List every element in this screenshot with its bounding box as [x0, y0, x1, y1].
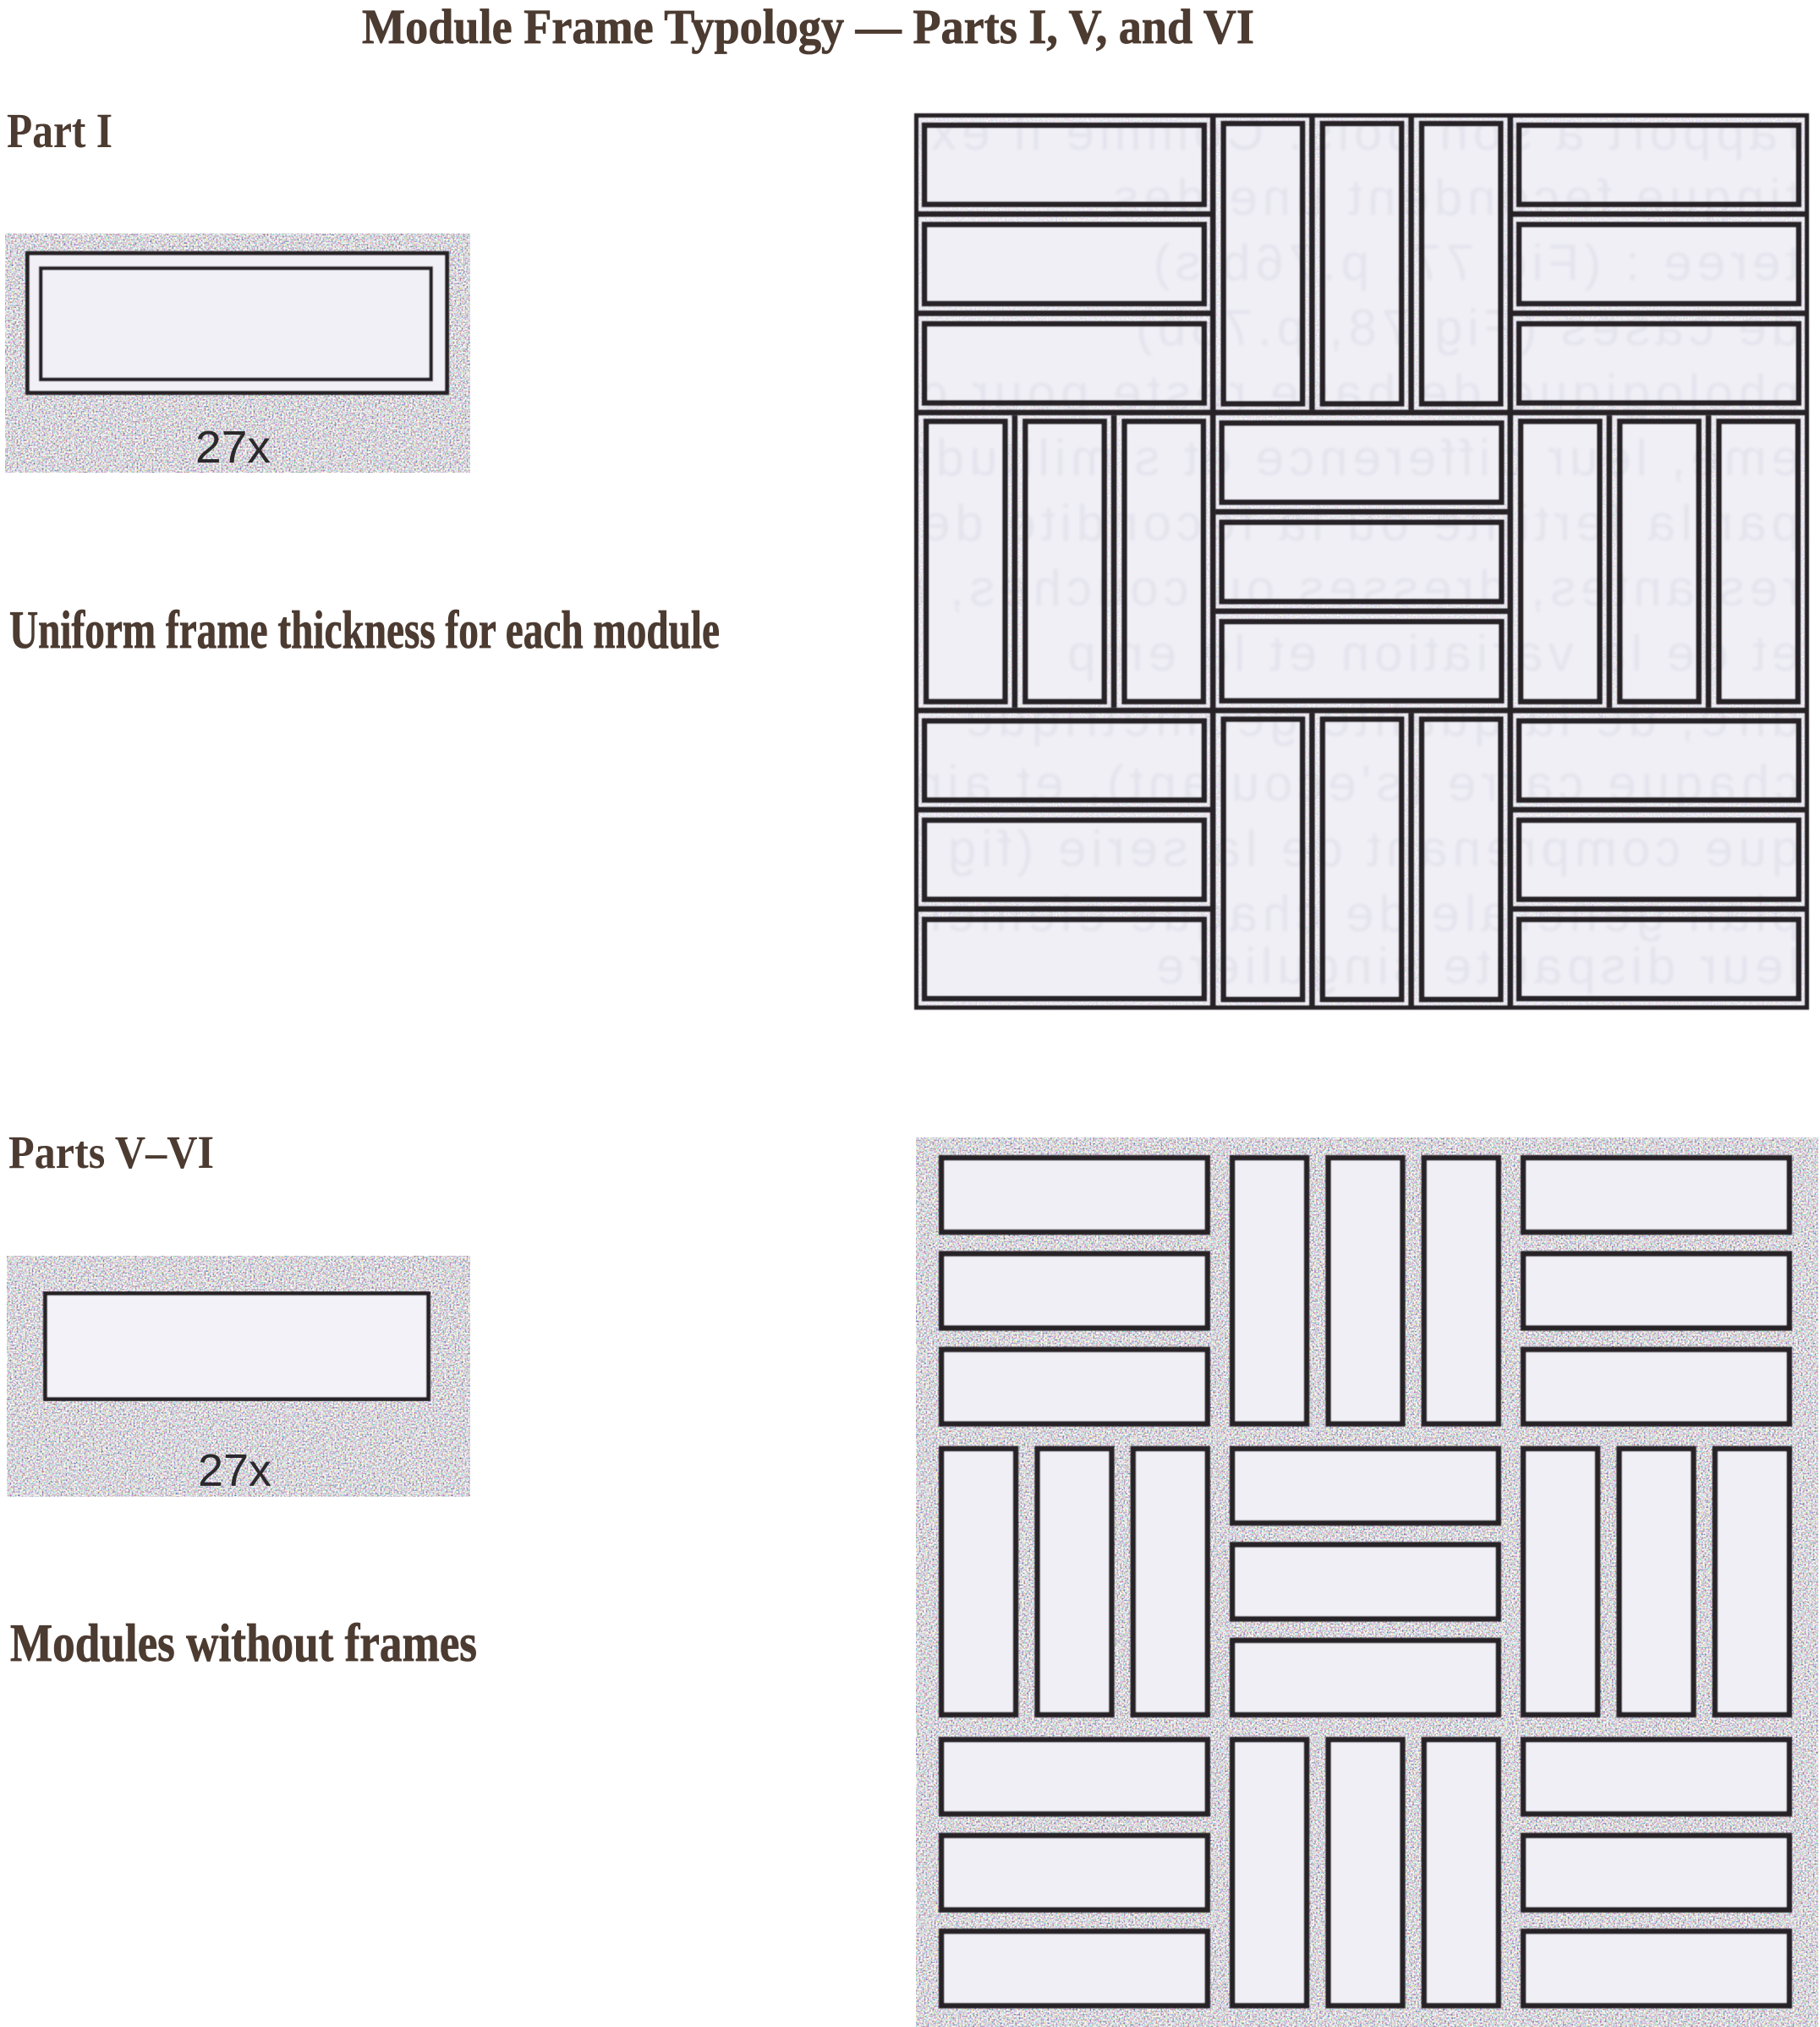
- svg-text:phologique de base reste pour: phologique de base reste pour chaq: [818, 364, 1800, 421]
- svg-text:Module Frame Typology — Parts: Module Frame Typology — Parts I, V, and …: [362, 0, 1254, 54]
- svg-text:de cases (Fig 78, p.76b): de cases (Fig 78, p.76b): [1131, 299, 1800, 356]
- svg-text:et de la variation et le emp: et de la variation et le emp: [1062, 625, 1800, 682]
- svg-text:teree : (Fig 77, p.76bis): teree : (Fig 77, p.76bis): [1148, 234, 1800, 291]
- svg-text:Part I: Part I: [7, 103, 112, 158]
- svg-text:restantes, dresses ou couches,: restantes, dresses ou couches, ma: [846, 560, 1800, 616]
- svg-text:Modules without frames: Modules without frames: [10, 1613, 477, 1673]
- svg-text:plan generale de chaque elemen: plan generale de chaque element: [889, 885, 1800, 942]
- svg-text:eme, leur difference et simili: eme, leur difference et similitude: [897, 430, 1800, 486]
- svg-text:27x: 27x: [198, 1445, 271, 1496]
- svg-text:par la fertilite ou la fecondi: par la fertilite ou la fecondite de: [917, 495, 1800, 551]
- svg-text:Uniform frame thickness for ea: Uniform frame thickness for each module: [9, 600, 720, 660]
- svg-text:27x: 27x: [195, 422, 271, 473]
- svg-text:tingue fecondent une des: tingue fecondent une des: [1108, 169, 1800, 226]
- svg-text:dire, de la qualite geometriqu: dire, de la qualite geometrique: [960, 690, 1800, 747]
- svg-text:Parts V–VI: Parts V–VI: [8, 1126, 214, 1178]
- svg-text:leur disparite singuliere: leur disparite singuliere: [1151, 938, 1800, 994]
- svg-text:que comprenant de la serie (fi: que comprenant de la serie (fig 79): [835, 820, 1800, 877]
- svg-text:chaque carre (s'ecoulant), et: chaque carre (s'ecoulant), et ainsi d: [809, 755, 1800, 812]
